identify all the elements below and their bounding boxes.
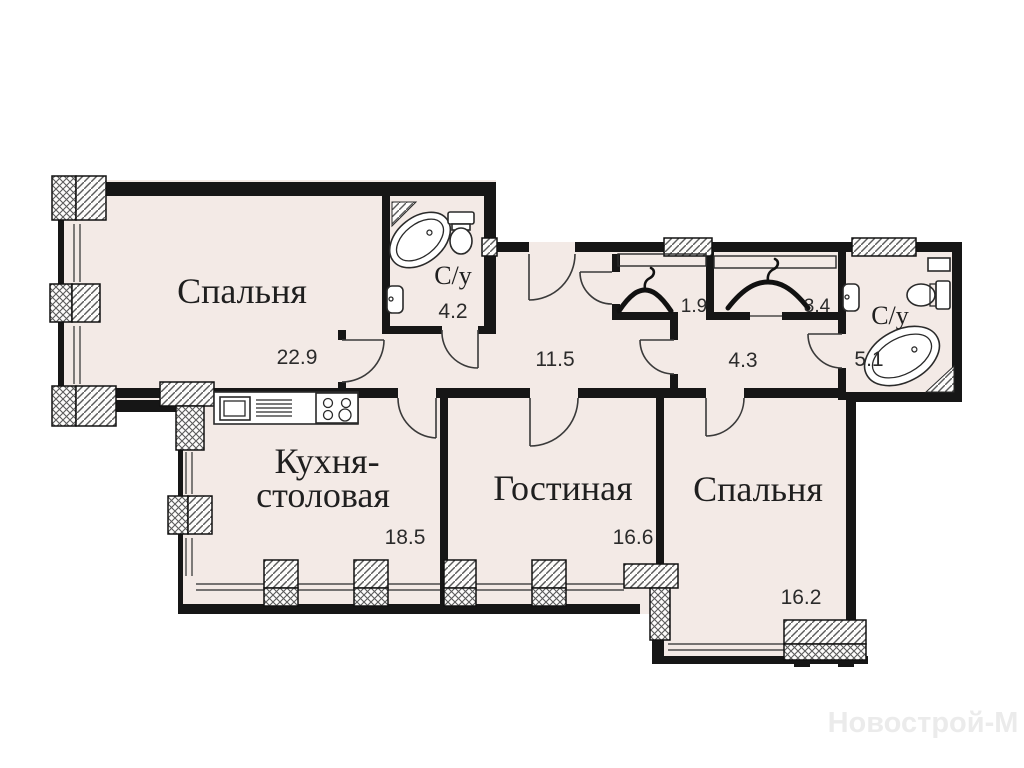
kitchen-fixtures [214, 392, 358, 424]
hall-area: 4.3 [728, 349, 757, 372]
bedroom2-label: Спальня [693, 469, 823, 509]
wardrobe1-area: 1.9 [681, 296, 707, 317]
watermark: Новострой-М [828, 707, 1019, 739]
sink-icon [387, 286, 403, 313]
stove-icon [316, 393, 358, 423]
bedroom1-label: Спальня [177, 271, 307, 311]
kitchen-sink-icon [220, 397, 292, 420]
kitchen-area: 18.5 [385, 526, 426, 549]
living-label: Гостиная [493, 468, 632, 508]
floor-plan-drawing: Спальня 22.9 С/у 4.2 11.5 1.9 3.4 4.3 С/… [0, 0, 1024, 768]
kitchen-label-line2: столовая [256, 475, 390, 515]
bathroom2-label: С/у [871, 301, 909, 330]
toilet-icon [448, 212, 474, 254]
vent-box [928, 258, 950, 271]
living-area: 16.6 [613, 526, 654, 549]
wardrobe2-area: 3.4 [804, 296, 831, 317]
toilet-icon [907, 281, 950, 309]
bathroom2-area: 5.1 [854, 348, 883, 371]
bathroom1-label: С/у [434, 261, 472, 290]
floor-plan-page: Спальня 22.9 С/у 4.2 11.5 1.9 3.4 4.3 С/… [0, 0, 1024, 768]
bathroom1-area: 4.2 [438, 300, 467, 323]
hallway-area: 11.5 [535, 348, 574, 371]
bedroom1-area: 22.9 [277, 346, 318, 369]
sink-icon [843, 284, 859, 311]
bedroom2-area: 16.2 [781, 586, 822, 609]
